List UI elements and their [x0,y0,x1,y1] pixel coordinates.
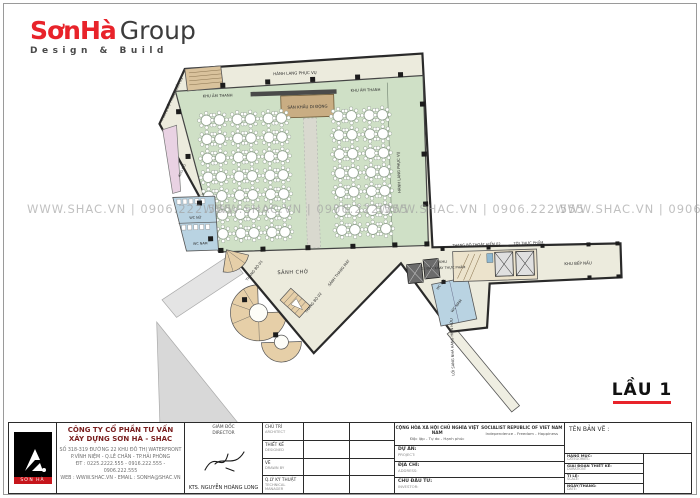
label-tray-area-1: KHU [439,260,447,264]
logo-brand-text: SơnHà [30,16,116,45]
drawing-name-cell: TÊN BẢN VẼ : HẠNG MỤC:CATEGORIES: GIAI Đ… [565,423,691,493]
grid-row-designed: THIẾT KẾDESIGNED [263,441,394,459]
project-info-cell: CỘNG HÒA XÃ HỘI CHỦ NGHĨA VIỆT NAM Độc l… [395,423,565,493]
row-label-en: TECHNICAL MANAGER [265,483,301,491]
row-label-vn: VẼ [265,460,301,465]
row-label-vn: CHỦ TRÌ [265,424,301,429]
sonha-logo-glyph [18,443,48,477]
meta-label-en: CATEGORIES: [567,458,641,462]
meta-date: NGÀY/THÁNG:DATE: [565,484,643,493]
company-address-2: P.VĨNH NIỆM - Q.LÊ CHÂN - TP.HẢI PHÒNG [59,454,182,461]
banquet-table [273,128,291,146]
floor-plan: HÀNH LANG PHỤC VỤ KHU ÂM THANH KHU ÂM TH… [130,42,690,427]
floor-label: LẦU 1 [607,380,677,404]
watermark: WWW.SHAC.VN | 0906.222.555 [555,202,700,216]
watermark: WWW.SHAC.VN | 0906.222.555 [27,202,233,216]
national-motto: CỘNG HÒA XÃ HỘI CHỦ NGHĨA VIỆT NAM Độc l… [395,423,564,446]
drawing-name-label: TÊN BẢN VẼ : [565,423,691,454]
row-label-en: ARCHITECT [265,430,301,434]
signature-box [303,441,349,458]
floor-label-text: LẦU 1 [612,380,673,400]
banquet-table [243,167,261,185]
director-cell: GIÁM ĐỐC DIRECTOR KTS. NGUYỄN HOÀNG LONG [185,423,263,493]
watermark: WWW.SHAC.VN | 0906.222.555 [203,202,409,216]
address-label-en: ADDRESS: [398,468,561,473]
signature-box [303,423,349,440]
banquet-table [211,130,229,148]
label-food-lift: TỜI THỰC PHẨM [512,240,543,246]
floor-label-underline [613,401,671,404]
banquet-table [245,224,263,242]
label-sound-left: KHU ÂM THANH [203,93,233,99]
motto-en-1: SOCIALIST REPUBLIC OF VIET NAM [480,425,565,430]
motto-vn-1: CỘNG HÒA XÃ HỘI CHỦ NGHĨA VIỆT NAM [395,425,480,435]
row-label-vn: THIẾT KẾ [265,442,301,447]
signature-box [349,423,395,440]
project-label-en: PROJECT: [398,452,561,457]
grid-row-drawn: VẼDRAWN BY [263,459,394,477]
investor-label-en: INVESTOR: [398,484,561,489]
banquet-table [274,166,292,184]
row-label-vn: Q.LÝ KỸ THUẬT [265,477,301,482]
meta-label-en: DURATION: [567,468,641,472]
address-row: ĐỊA CHỈ: ADDRESS: [395,462,564,478]
drawing-number-box [643,454,691,493]
banquet-table [344,164,362,182]
signature-box [349,459,395,476]
banquet-table [346,221,364,239]
banquet-table [345,183,363,201]
banquet-table [241,110,259,128]
label-kitchen: KHU BẾP NẤU [564,259,592,266]
escape-stair-1 [185,66,224,91]
company-info-cell: CÔNG TY CỔ PHẦN TƯ VẤN XÂY DỰNG SƠN HÀ -… [57,423,185,493]
company-web-email: WEB : WWW.SHAC.VN - EMAIL : SONHA@SHAC.V… [59,475,182,482]
company-name-line2: XÂY DỰNG SƠN HÀ - SHAC [59,435,182,444]
pavement-triangle [157,319,240,427]
title-block: SƠN HÀ CÔNG TY CỔ PHẦN TƯ VẤN XÂY DỰNG S… [8,422,692,494]
banquet-table [273,147,291,165]
grid-row-architect: CHỦ TRÌARCHITECT [263,423,394,441]
logo-group-text: Group [120,16,196,45]
director-name: KTS. NGUYỄN HOÀNG LONG [189,485,259,491]
director-signature [201,448,247,474]
label-sound-right: KHU ÂM THANH [350,87,380,93]
watermark: WWW.SHAC.VN | 0906.222.555 [379,202,585,216]
meta-label-en: DATE: [567,488,641,492]
banquet-table [272,109,290,127]
investor-row: CHỦ ĐẦU TƯ: INVESTOR: [395,478,564,493]
banquet-table [276,223,294,241]
director-label-en: DIRECTOR [212,431,234,437]
banquet-table [373,106,391,124]
signature-box [303,459,349,476]
banquet-table [343,126,361,144]
banquet-table [212,168,230,186]
walkway-existing [447,326,520,414]
meta-label-en: SCALE: [567,478,641,482]
banquet-table [242,148,260,166]
sonha-logo-text: SƠN HÀ [14,477,52,484]
banquet-table [242,129,260,147]
row-label-en: DRAWN BY [265,466,301,470]
sonha-logo-box: SƠN HÀ [14,432,52,484]
director-label-vn: GIÁM ĐỐC [212,425,234,431]
banquet-table [342,107,360,125]
banquet-table [374,125,392,143]
label-wc-men-left: WC NAM [193,241,208,245]
motto-vn-2: Độc lập - Tự do - Hạnh phúc [395,436,480,441]
banquet-table [275,185,293,203]
project-row: DỰ ÁN: PROJECT: [395,446,564,462]
banquet-table [377,220,395,238]
banquet-table [210,111,228,129]
banquet-table [374,144,392,162]
signature-box [349,476,395,493]
corridor-stair-lift-block [453,249,538,282]
banquet-table [376,182,394,200]
banquet-table [375,163,393,181]
signature-box [303,476,349,493]
signature-grid: CHỦ TRÌARCHITECT THIẾT KẾDESIGNED VẼDRAW… [263,423,395,493]
banquet-table [211,149,229,167]
company-name-line1: CÔNG TY CỔ PHẦN TƯ VẤN [59,426,182,435]
title-logo-cell: SƠN HÀ [9,423,57,493]
motto-en-2: Independence - Freedom - Happiness [480,431,565,436]
company-phone: ĐT : 0225.2222.555 - 0916.222.555 - 0906… [59,461,182,475]
drawing-sheet: SơnHà Group Design & Build [0,0,700,498]
banquet-table [343,145,361,163]
drawing-meta: HẠNG MỤC:CATEGORIES: GIAI ĐOẠN THIẾT KẾ:… [565,454,643,493]
grid-row-technical: Q.LÝ KỸ THUẬTTECHNICAL MANAGER [263,476,394,493]
signature-box [349,441,395,458]
company-address-1: SỐ 318-319 ĐƯỜNG 22 KHU ĐÔ THỊ WATERFRON… [59,447,182,454]
row-label-en: DESIGNED [265,448,301,452]
